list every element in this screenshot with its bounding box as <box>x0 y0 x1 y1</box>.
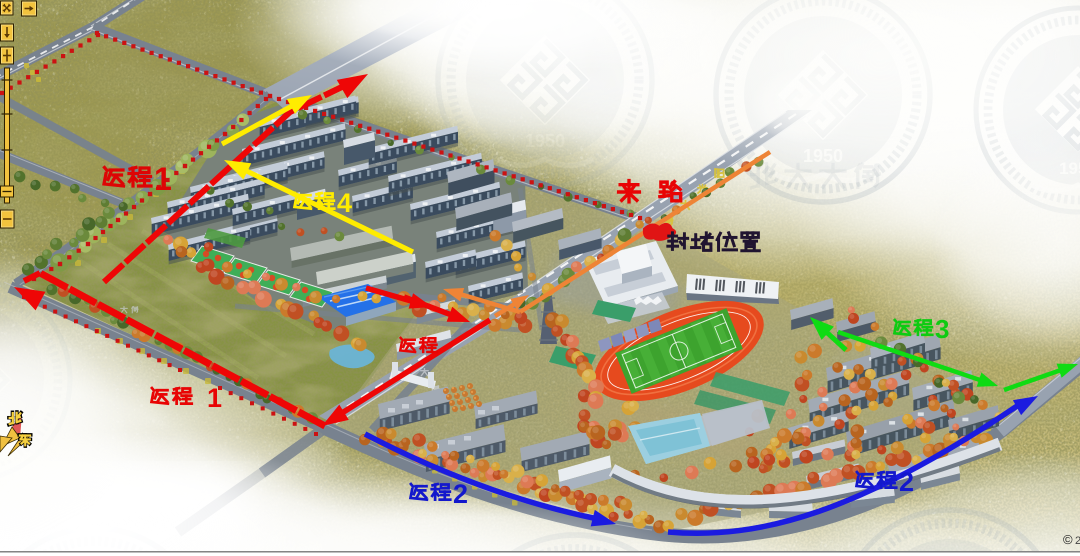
svg-text:4: 4 <box>337 188 352 218</box>
svg-text:2: 2 <box>453 479 468 509</box>
svg-text:2: 2 <box>899 467 914 497</box>
svg-text:1950: 1950 <box>525 131 565 151</box>
svg-text:©: © <box>1063 532 1073 547</box>
svg-text:3: 3 <box>935 314 949 344</box>
svg-text:2: 2 <box>1075 535 1080 547</box>
svg-text:1: 1 <box>207 383 222 413</box>
svg-text:1: 1 <box>154 161 172 197</box>
